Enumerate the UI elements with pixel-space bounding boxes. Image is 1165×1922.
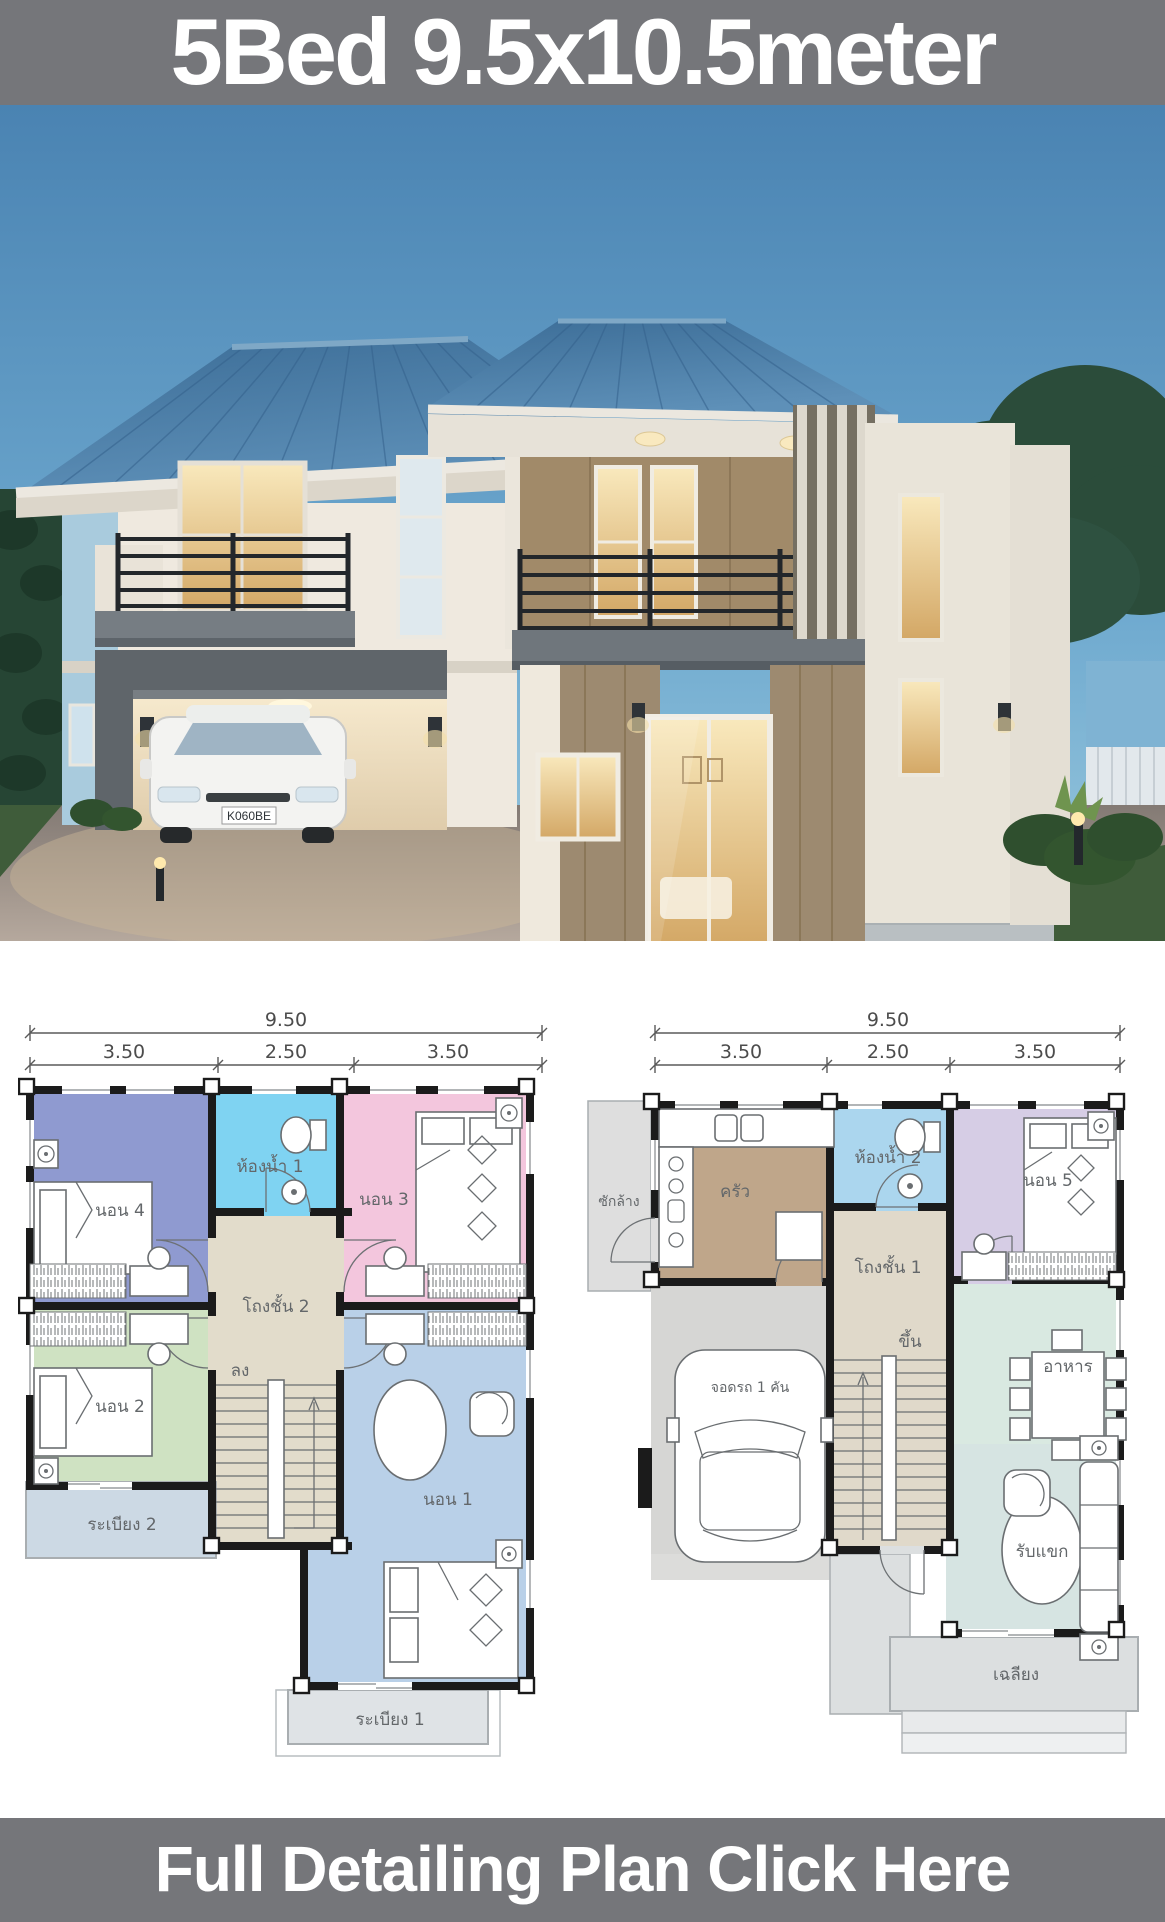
dim-seg: 3.50 xyxy=(427,1041,469,1063)
sliding-door xyxy=(648,717,770,941)
dresser xyxy=(366,1266,424,1296)
tall-window xyxy=(900,495,942,640)
label-porch: เฉลียง xyxy=(993,1665,1039,1685)
dim-seg: 3.50 xyxy=(103,1041,145,1063)
dim-seg: 3.50 xyxy=(1014,1041,1056,1063)
bed xyxy=(416,1112,520,1272)
bed xyxy=(384,1562,518,1678)
floor-plan-second-floor: 9.50 3.50 2.50 3.50 xyxy=(18,1000,568,1770)
floor-plan-first-floor: 9.50 3.50 2.50 3.50 xyxy=(580,1000,1165,1770)
label-bed2: นอน 2 xyxy=(95,1397,145,1417)
dresser xyxy=(130,1266,188,1296)
label-balcony2: ระเบียง 2 xyxy=(87,1515,156,1535)
label-dining: อาหาร xyxy=(1043,1357,1093,1377)
sink-icon xyxy=(898,1174,922,1198)
poster-page: 5Bed 9.5x10.5meter xyxy=(0,0,1165,1922)
stair-window xyxy=(398,457,444,637)
dim-seg: 2.50 xyxy=(867,1041,909,1063)
label-up: ขึ้น xyxy=(898,1329,922,1352)
wardrobe xyxy=(1008,1252,1116,1280)
label-laundry: ซักล้าง xyxy=(598,1194,639,1210)
vertical-slats xyxy=(793,405,875,639)
house-photo: K060BE xyxy=(0,105,1165,941)
carport-pillar xyxy=(638,1448,652,1508)
armchair xyxy=(470,1392,514,1436)
cta-banner[interactable]: Full Detailing Plan Click Here xyxy=(0,1818,1165,1922)
label-kitchen: ครัว xyxy=(720,1182,750,1202)
toilet-icon xyxy=(281,1117,326,1153)
dim-seg: 3.50 xyxy=(720,1041,762,1063)
bed xyxy=(34,1182,152,1274)
label-bed5: นอน 5 xyxy=(1023,1171,1073,1191)
armchair xyxy=(1004,1470,1050,1516)
wardrobe xyxy=(30,1264,126,1298)
rug xyxy=(374,1380,446,1480)
side-window xyxy=(70,705,94,765)
label-carpark: จอดรถ 1 คัน xyxy=(711,1380,790,1396)
label-hall1: โถงชั้น 1 xyxy=(854,1255,921,1278)
label-bed3: นอน 3 xyxy=(359,1190,409,1210)
label-bed4: นอน 4 xyxy=(95,1201,145,1221)
car: K060BE xyxy=(140,705,356,843)
label-bath2: ห้องน้ำ 2 xyxy=(854,1145,921,1168)
label-down: ลง xyxy=(231,1361,250,1381)
title-banner: 5Bed 9.5x10.5meter xyxy=(0,0,1165,105)
label-living: รับแขก xyxy=(1016,1542,1069,1562)
lower-window xyxy=(900,680,942,775)
wardrobe xyxy=(30,1312,126,1346)
kitchen-island xyxy=(776,1212,822,1260)
dim-seg: 2.50 xyxy=(265,1041,307,1063)
dim-total: 9.50 xyxy=(867,1009,909,1031)
label-bed1: นอน 1 xyxy=(423,1490,473,1510)
dresser xyxy=(962,1252,1006,1280)
label-hall2: โถงชั้น 2 xyxy=(242,1294,309,1317)
dimension-lines: 9.50 3.50 2.50 3.50 xyxy=(650,1009,1125,1073)
label-bath1: ห้องน้ำ 1 xyxy=(236,1154,303,1177)
dresser xyxy=(130,1314,188,1344)
sink-icon xyxy=(282,1180,306,1204)
page-title: 5Bed 9.5x10.5meter xyxy=(171,0,995,104)
cta-text[interactable]: Full Detailing Plan Click Here xyxy=(155,1833,1011,1905)
wardrobe xyxy=(428,1264,526,1298)
license-plate-text: K060BE xyxy=(227,809,271,823)
dresser xyxy=(366,1314,424,1344)
room-bath1 xyxy=(208,1086,344,1216)
label-balcony1: ระเบียง 1 xyxy=(355,1710,424,1730)
dimension-lines: 9.50 3.50 2.50 3.50 xyxy=(25,1009,547,1073)
wardrobe xyxy=(428,1312,526,1346)
dim-total: 9.50 xyxy=(265,1009,307,1031)
